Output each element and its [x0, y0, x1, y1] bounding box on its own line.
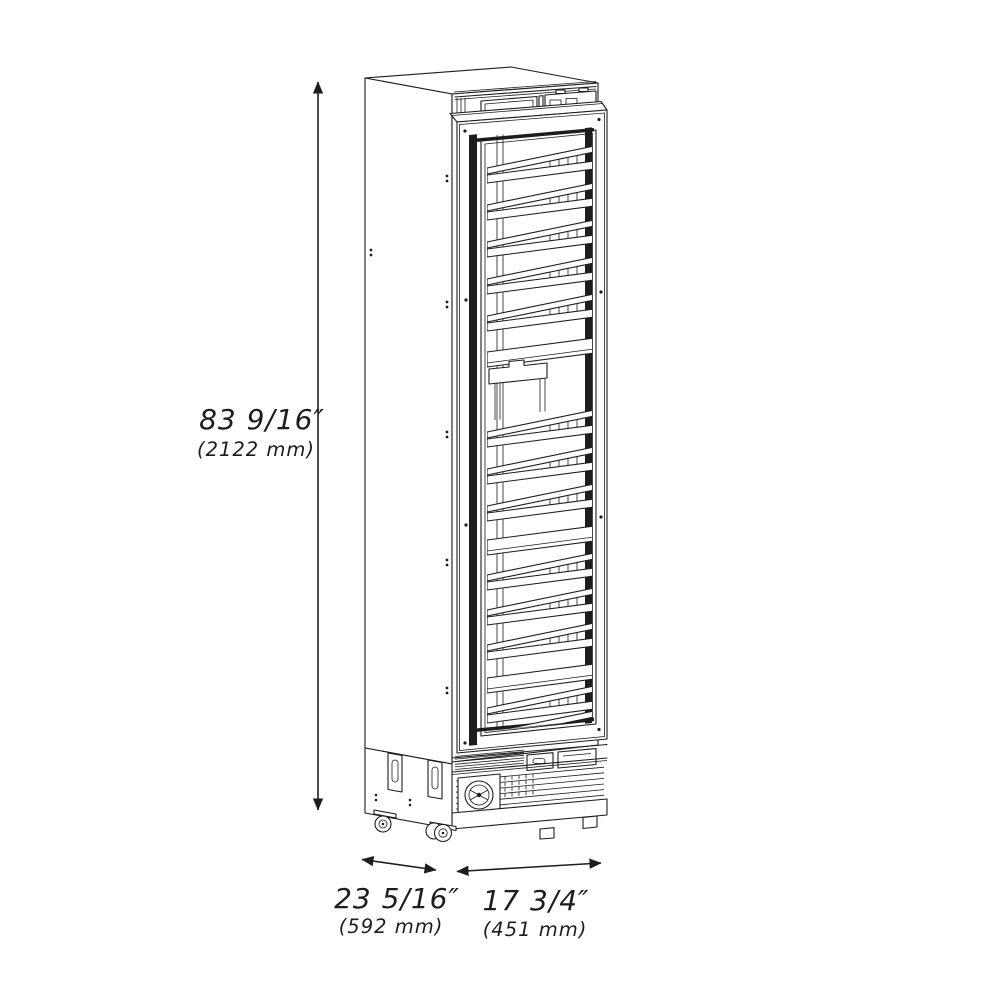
dimension-diagram-page: 83 9/16″ (2122 mm) 23 5/16″ (592 mm) 17 …: [0, 0, 1000, 1000]
mounting-bracket: [388, 753, 402, 792]
width-dimension-arrow: [457, 863, 601, 872]
depth-dimension-arrow: [362, 860, 436, 871]
cabinet-left-panel: [365, 78, 452, 764]
leveling-foot: [540, 828, 554, 839]
width-dimension: 17 3/4″ (451 mm): [457, 863, 601, 941]
width-imperial-label: 17 3/4″: [482, 884, 589, 917]
height-imperial-label: 83 9/16″: [199, 403, 325, 436]
caster-wheel: [374, 810, 396, 832]
mounting-bracket: [428, 760, 442, 799]
height-metric-label: (2122 mm): [197, 438, 315, 461]
glass-edge-left: [469, 134, 477, 746]
height-dimension: 83 9/16″ (2122 mm): [197, 82, 325, 810]
depth-metric-label: (592 mm): [339, 915, 444, 938]
depth-dimension: 23 5/16″ (592 mm): [334, 860, 460, 939]
leveling-foot: [583, 816, 597, 829]
base-left-side: [365, 748, 456, 842]
width-metric-label: (451 mm): [483, 918, 588, 941]
wine-cooler-dimension-diagram: 83 9/16″ (2122 mm) 23 5/16″ (592 mm) 17 …: [0, 0, 1000, 1000]
depth-imperial-label: 23 5/16″: [334, 882, 460, 915]
